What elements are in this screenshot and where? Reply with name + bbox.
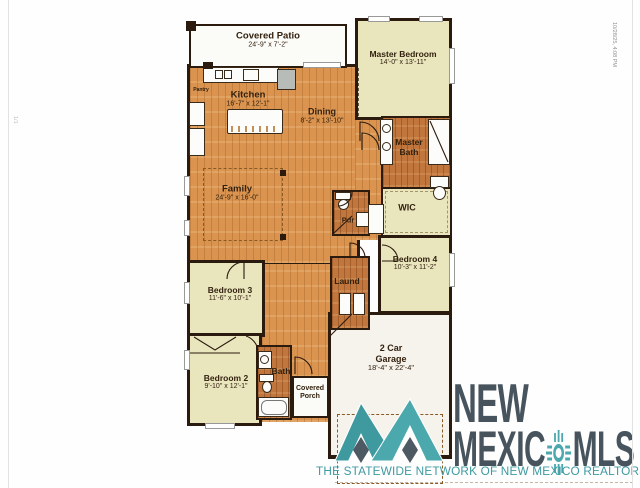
kitchen-sink-icon	[224, 70, 232, 79]
family-rug-outline	[203, 168, 283, 241]
window	[419, 16, 443, 22]
stove-icon	[243, 69, 259, 81]
page-edge-right	[632, 0, 633, 488]
window	[184, 350, 190, 370]
linen-closet	[368, 204, 384, 234]
refrigerator-icon	[277, 69, 296, 90]
window	[449, 48, 455, 84]
window	[184, 282, 190, 304]
toilet-icon	[433, 186, 446, 200]
toilet-icon	[262, 381, 272, 393]
label-dining: Dining 8'-2" x 13'-10"	[300, 107, 343, 126]
window	[205, 423, 235, 429]
label-powder: Pdr	[342, 217, 355, 226]
column-post	[280, 234, 286, 240]
sink-icon	[260, 355, 269, 364]
print-page-indicator: 1/1	[12, 116, 18, 124]
label-garage: 2 Car Garage 18'-4" x 22'-4"	[367, 343, 415, 373]
label-master-bath: Master Bath	[388, 137, 430, 157]
label-covered-patio: Covered Patio 24'-9" x 7'-2"	[236, 30, 300, 49]
patio-post	[186, 21, 196, 31]
window	[368, 16, 390, 22]
floorplan-page: Covered Patio 24'-9" x 7'-2" Kitchen 16'…	[0, 0, 640, 488]
room-bedroom4	[378, 235, 452, 314]
toilet-icon	[338, 199, 349, 210]
wall-post	[203, 62, 213, 69]
window	[184, 220, 190, 236]
label-wic: WIC	[398, 203, 416, 214]
kitchen-sink-icon	[215, 70, 223, 79]
dryer-icon	[353, 293, 365, 315]
window	[184, 176, 190, 196]
label-covered-porch: Covered Porch	[293, 385, 327, 402]
mountains-logo-icon	[331, 391, 447, 463]
bathtub-icon	[261, 400, 287, 415]
logo-tagline: THE STATEWIDE NETWORK OF NEW MEXICO REAL…	[316, 464, 640, 478]
room-master-bedroom	[355, 18, 452, 120]
label-bedroom2: Bedroom 2 9'-10" x 12'-1"	[204, 373, 248, 391]
window	[449, 253, 455, 287]
label-bedroom3: Bedroom 3 11'-6" x 10'-1"	[208, 285, 252, 303]
patio-door-opening	[303, 62, 341, 68]
page-edge-left	[8, 0, 9, 488]
wall-oven-icon	[189, 102, 205, 126]
shower-icon	[428, 119, 450, 165]
sink-icon	[356, 212, 369, 227]
label-family: Family 24'-9" x 16'-0"	[215, 183, 258, 202]
cooktop-range-icon	[189, 128, 205, 156]
label-kitchen: Kitchen 16'-7" x 12'-1"	[226, 89, 269, 108]
label-bath: Bath	[272, 366, 291, 376]
label-bedroom4: Bedroom 4 10'-3" x 11'-2"	[393, 254, 437, 272]
island-stools	[231, 126, 279, 132]
driveway-dash-line	[335, 482, 633, 483]
label-master-bedroom: Master Bedroom 14'-0" x 13'-11"	[369, 49, 436, 67]
print-timestamp: 10/28/25, 4:08 PM	[611, 22, 617, 67]
label-pantry: Pantry	[193, 88, 209, 94]
column-post	[280, 170, 286, 176]
washer-icon	[339, 293, 351, 315]
sink-icon	[382, 124, 391, 133]
label-laundry: Laund	[334, 276, 360, 286]
